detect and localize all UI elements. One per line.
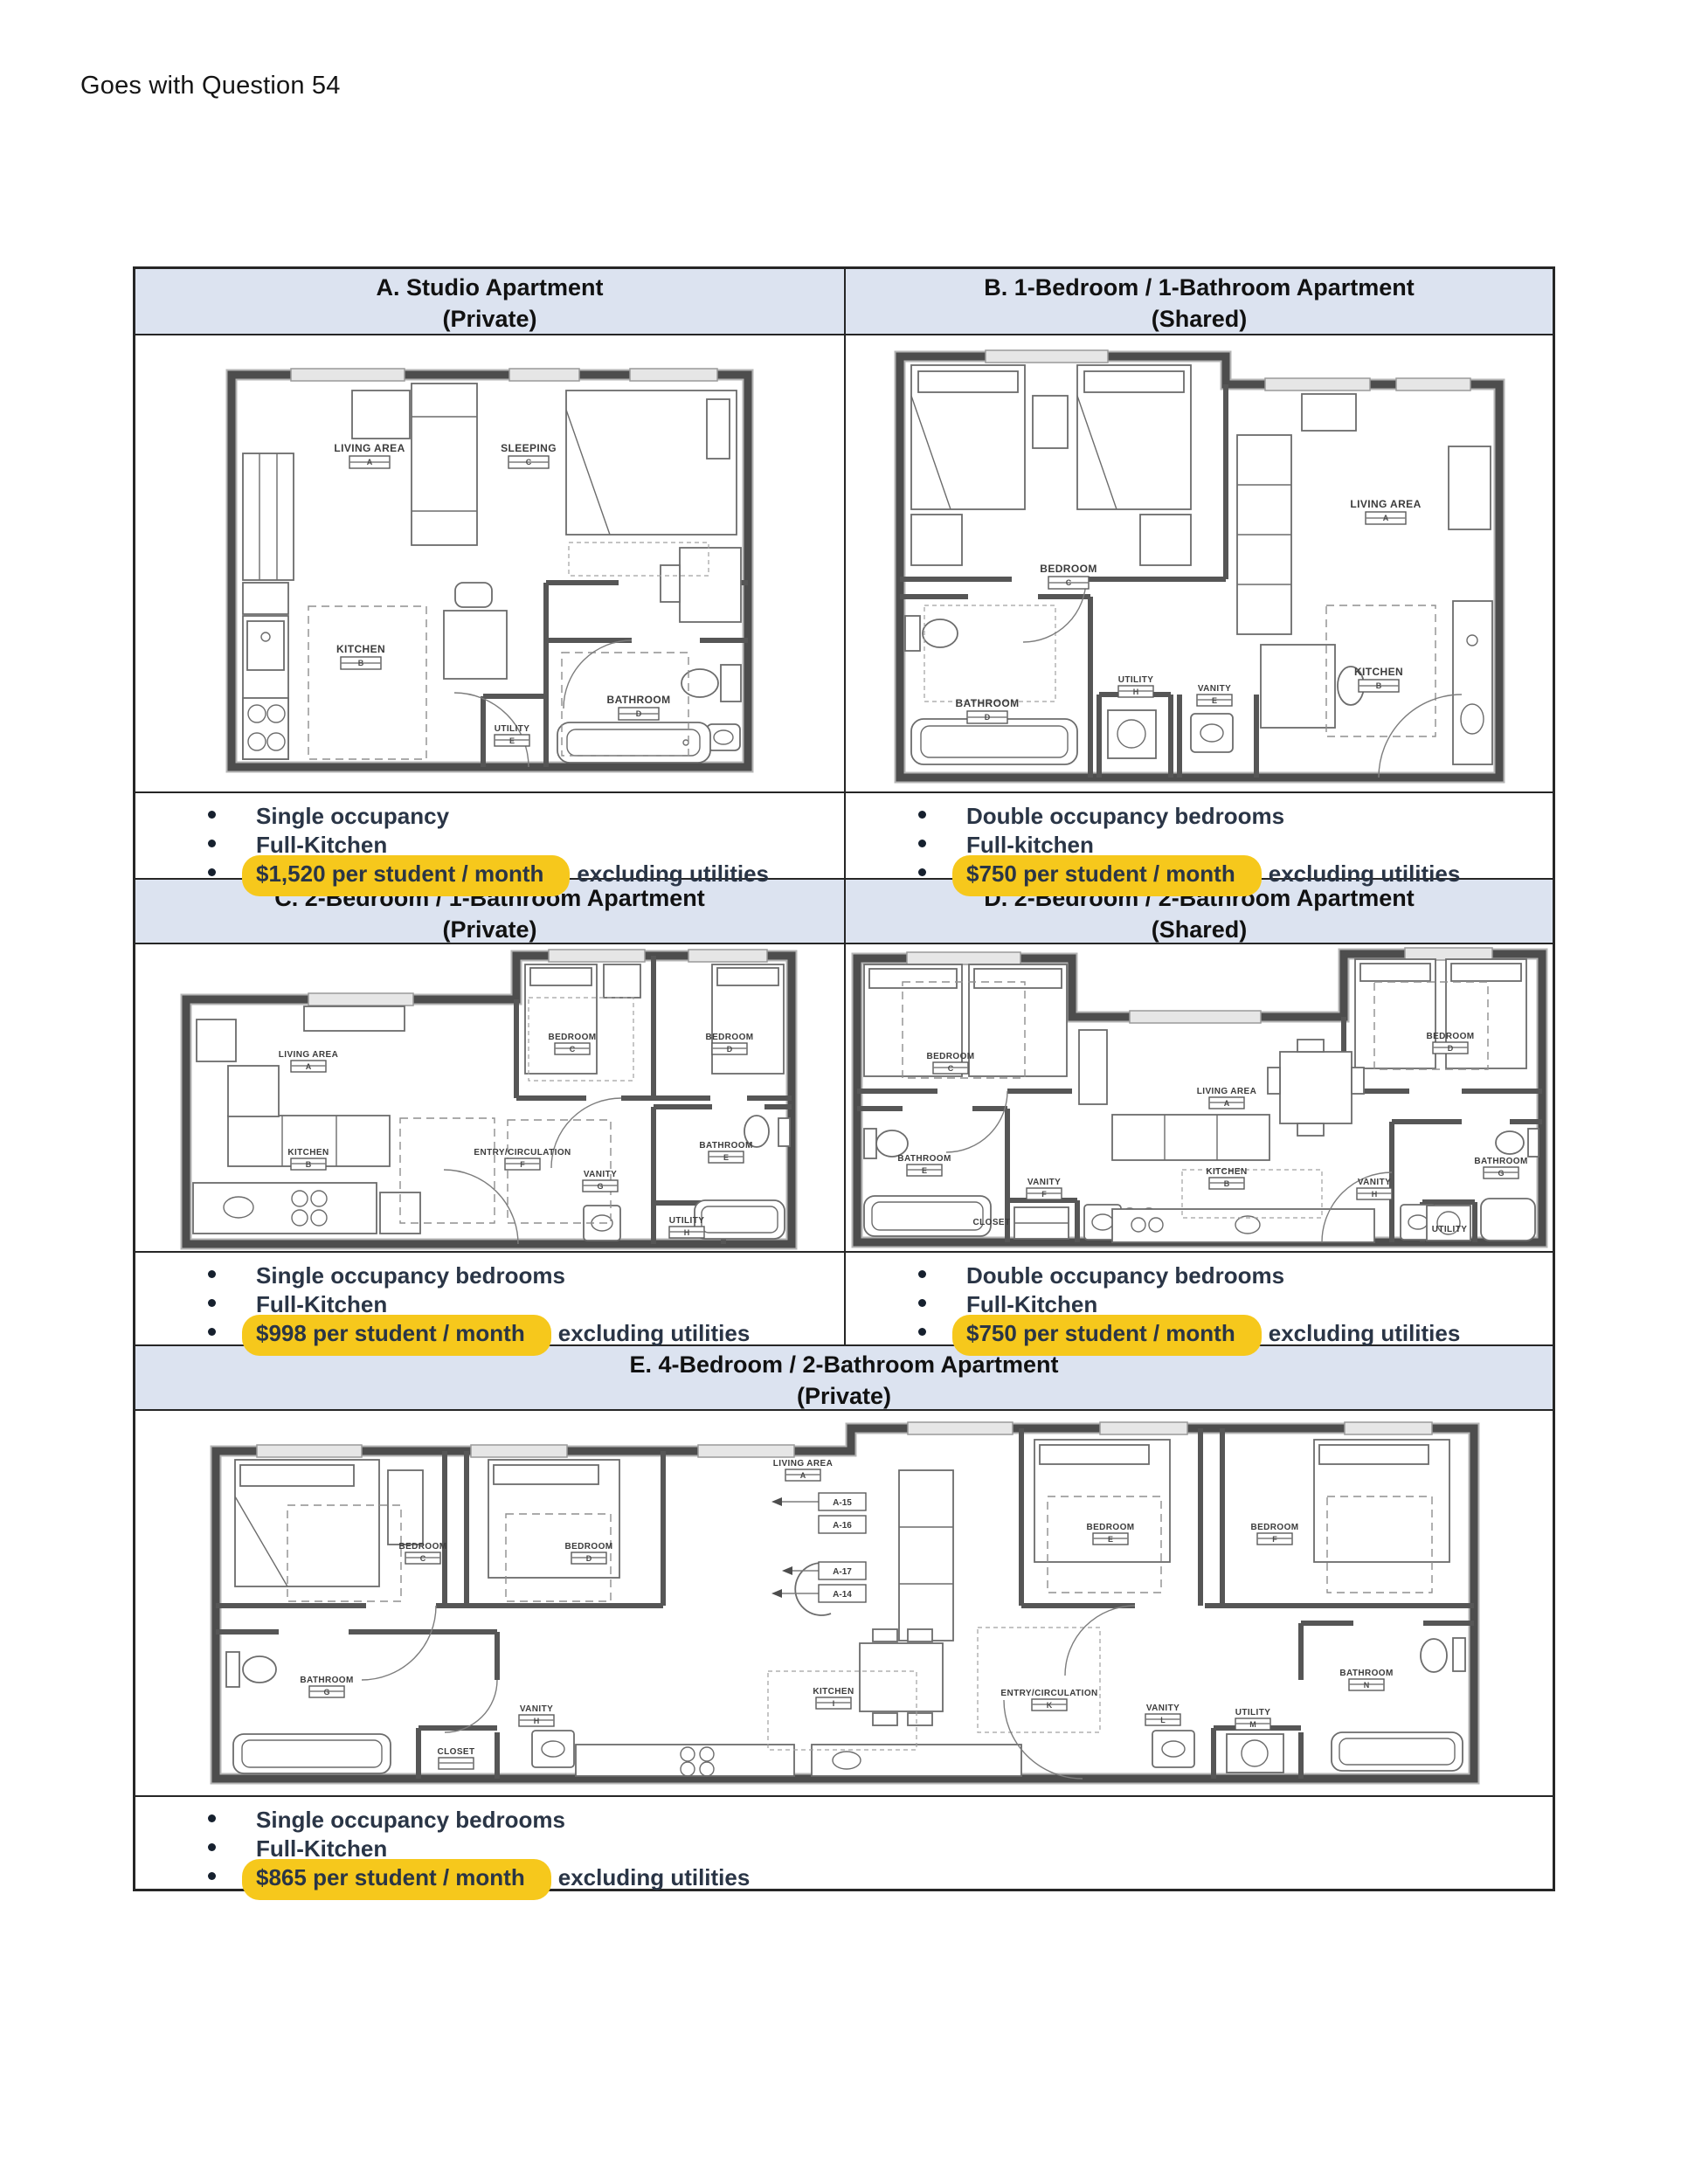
svg-text:I: I <box>832 1699 834 1708</box>
room-label-living-area: LIVING AREA A <box>772 1459 832 1481</box>
svg-text:UTILITY: UTILITY <box>1235 1708 1270 1717</box>
svg-text:D: D <box>1447 1044 1453 1053</box>
svg-text:KITCHEN: KITCHEN <box>287 1148 329 1158</box>
room-label-utility: UTILITY E <box>495 724 530 746</box>
bullet-occupancy: Double occupancy bedrooms <box>918 802 1553 831</box>
room-label-vanity-2: VANITY H <box>1357 1178 1392 1199</box>
price-highlight: $998 per student / month <box>242 1315 551 1356</box>
plan-row-ab: LIVING AREA A SLEEPING C KITCHEN B <box>135 334 1553 791</box>
svg-text:UTILITY: UTILITY <box>1117 675 1153 685</box>
room-label-kitchen: KITCHEN B <box>1206 1167 1247 1189</box>
room-label-bathroom-2: BATHROOM G <box>1474 1157 1527 1178</box>
plan-b-floorplan: BEDROOM C LIVING AREA A KITCHEN B <box>889 343 1510 784</box>
plan-a-cell: LIVING AREA A SLEEPING C KITCHEN B <box>135 335 844 791</box>
section-b-header: B. 1-Bedroom / 1-Bathroom Apartment (Sha… <box>844 269 1553 334</box>
svg-text:H: H <box>684 1228 690 1237</box>
svg-text:A: A <box>799 1471 806 1480</box>
plan-row-cd: LIVING AREA A KITCHEN B BEDROOM C <box>135 943 1553 1251</box>
plan-c-cell: LIVING AREA A KITCHEN B BEDROOM C <box>135 944 844 1251</box>
callout-a17: A-17 <box>782 1562 866 1579</box>
callout-a16: A-16 <box>819 1516 866 1533</box>
plan-a-floorplan: LIVING AREA A SLEEPING C KITCHEN B <box>221 349 758 778</box>
room-label-bathroom-1: BATHROOM G <box>300 1676 353 1697</box>
svg-text:A-17: A-17 <box>833 1567 852 1577</box>
room-label-vanity: VANITY G <box>583 1170 618 1192</box>
bullet-occupancy: Double occupancy bedrooms <box>918 1261 1553 1290</box>
svg-text:BEDROOM: BEDROOM <box>1426 1032 1474 1041</box>
svg-text:UTILITY: UTILITY <box>669 1216 705 1226</box>
section-b-subtitle: (Shared) <box>846 303 1553 335</box>
svg-text:C: C <box>1065 578 1071 587</box>
bullet-dot <box>918 1328 926 1336</box>
price-highlight: $750 per student / month <box>952 1315 1262 1356</box>
bullet-dot <box>208 1270 216 1278</box>
plan-c-furniture <box>193 964 790 1241</box>
svg-text:B: B <box>1375 681 1381 690</box>
room-label-bedroom-1: BEDROOM C <box>548 1033 596 1054</box>
room-label-vanity: VANITY E <box>1197 684 1232 706</box>
bullet-dot <box>208 840 216 847</box>
room-label-living-area: LIVING AREA A <box>334 442 405 468</box>
svg-text:VANITY: VANITY <box>519 1704 552 1714</box>
svg-text:D: D <box>727 1045 733 1054</box>
room-label-kitchen: KITCHEN B <box>287 1148 329 1170</box>
bullet-price: $1,520 per student / monthexcluding util… <box>208 860 844 888</box>
svg-text:F: F <box>1041 1190 1047 1199</box>
svg-text:ENTRY/CIRCULATION: ENTRY/CIRCULATION <box>474 1148 571 1158</box>
price-highlight: $1,520 per student / month <box>242 855 570 896</box>
svg-text:VANITY: VANITY <box>1027 1178 1060 1187</box>
bullet-dot <box>208 1328 216 1336</box>
svg-text:G: G <box>323 1688 329 1697</box>
svg-text:BATHROOM: BATHROOM <box>897 1154 951 1164</box>
svg-text:LIVING AREA: LIVING AREA <box>772 1459 832 1469</box>
svg-text:B: B <box>358 659 364 667</box>
svg-text:B: B <box>1223 1179 1229 1188</box>
bullet-dot <box>918 1270 926 1278</box>
room-label-closet: CLOSET <box>437 1747 474 1769</box>
svg-text:VANITY: VANITY <box>584 1170 617 1179</box>
svg-text:E: E <box>921 1166 926 1175</box>
room-label-vanity-1: VANITY F <box>1027 1178 1062 1199</box>
svg-text:BEDROOM: BEDROOM <box>705 1033 753 1042</box>
section-a-title: A. Studio Apartment <box>135 272 844 303</box>
svg-text:C: C <box>419 1554 425 1563</box>
svg-text:BEDROOM: BEDROOM <box>398 1542 446 1552</box>
room-label-living-area: LIVING AREA A <box>1350 498 1421 524</box>
bullet-dot <box>918 840 926 847</box>
section-a-bullets: Single occupancy Full-Kitchen $1,520 per… <box>135 793 844 878</box>
svg-text:H: H <box>533 1717 539 1725</box>
svg-text:F: F <box>520 1160 525 1169</box>
room-label-living-area: LIVING AREA A <box>1196 1087 1256 1109</box>
svg-text:A-15: A-15 <box>833 1498 852 1508</box>
page-note: Goes with Question 54 <box>80 72 341 100</box>
bullet-dot <box>208 811 216 819</box>
room-label-bathroom: BATHROOM E <box>699 1141 752 1163</box>
svg-text:C: C <box>570 1045 576 1054</box>
svg-text:BEDROOM: BEDROOM <box>926 1052 974 1061</box>
room-label-living-area: LIVING AREA A <box>279 1050 338 1072</box>
section-d-subtitle: (Shared) <box>846 914 1553 945</box>
bullet-price: $865 per student / monthexcluding utilit… <box>208 1863 1553 1892</box>
svg-text:BATHROOM: BATHROOM <box>1474 1157 1527 1166</box>
svg-text:KITCHEN: KITCHEN <box>1206 1167 1247 1177</box>
room-label-bedroom-2: BEDROOM D <box>705 1033 753 1054</box>
svg-text:BATHROOM: BATHROOM <box>699 1141 752 1151</box>
svg-text:E: E <box>509 736 515 745</box>
room-label-bedroom-1: BEDROOM C <box>398 1542 446 1564</box>
room-label-bedroom-4: BEDROOM F <box>1250 1523 1298 1545</box>
svg-text:G: G <box>1498 1169 1504 1178</box>
room-label-bedroom-2: BEDROOM D <box>1426 1032 1474 1054</box>
section-e-bullets: Single occupancy bedrooms Full-Kitchen $… <box>135 1797 1553 1887</box>
svg-text:VANITY: VANITY <box>1357 1178 1390 1187</box>
plan-d-cell: BEDROOM C BEDROOM D LIVING AREA A <box>844 944 1553 1251</box>
svg-text:A-14: A-14 <box>833 1590 852 1600</box>
section-b-bullets: Double occupancy bedrooms Full-kitchen $… <box>844 793 1553 878</box>
svg-text:BATHROOM: BATHROOM <box>300 1676 353 1685</box>
svg-text:BEDROOM: BEDROOM <box>1086 1523 1134 1532</box>
svg-text:BATHROOM: BATHROOM <box>955 697 1019 709</box>
room-label-bedroom: BEDROOM C <box>1040 563 1097 589</box>
bullet-dot <box>918 868 926 876</box>
svg-text:KITCHEN: KITCHEN <box>336 643 385 655</box>
apartment-table: A. Studio Apartment (Private) B. 1-Bedro… <box>133 266 1555 1891</box>
room-label-closet: CLOSET <box>972 1218 1010 1227</box>
svg-text:G: G <box>597 1182 603 1191</box>
svg-text:C: C <box>526 458 532 467</box>
callout-a14: A-14 <box>771 1585 866 1602</box>
svg-text:L: L <box>1160 1716 1166 1724</box>
svg-text:F: F <box>1272 1535 1277 1544</box>
plan-row-e: A-15 A-16 A-17 A-14 LIVI <box>135 1409 1553 1795</box>
price-highlight: $750 per student / month <box>952 855 1262 896</box>
bullet-occupancy: Single occupancy bedrooms <box>208 1261 844 1290</box>
svg-text:BEDROOM: BEDROOM <box>1250 1523 1298 1532</box>
svg-text:A-16: A-16 <box>833 1521 852 1531</box>
svg-text:D: D <box>636 709 642 718</box>
svg-text:E: E <box>1211 696 1216 705</box>
header-row-ab: A. Studio Apartment (Private) B. 1-Bedro… <box>135 269 1553 334</box>
room-label-bathroom-2: BATHROOM N <box>1339 1669 1393 1690</box>
section-b-title: B. 1-Bedroom / 1-Bathroom Apartment <box>846 272 1553 303</box>
svg-text:UTILITY: UTILITY <box>495 724 530 734</box>
svg-text:K: K <box>1046 1701 1052 1710</box>
bullet-occupancy: Single occupancy <box>208 802 844 831</box>
section-a-header: A. Studio Apartment (Private) <box>135 269 844 334</box>
bullet-price: $750 per student / monthexcluding utilit… <box>918 860 1553 888</box>
room-label-kitchen: KITCHEN I <box>813 1687 854 1709</box>
svg-text:A: A <box>1223 1099 1229 1108</box>
svg-text:BEDROOM: BEDROOM <box>1040 563 1097 575</box>
svg-text:N: N <box>1363 1681 1369 1690</box>
svg-text:D: D <box>984 713 990 722</box>
room-label-utility: UTILITY H <box>1117 675 1153 697</box>
bullet-dot <box>208 1843 216 1851</box>
room-label-utility: UTILITY H <box>669 1216 705 1238</box>
svg-text:KITCHEN: KITCHEN <box>1353 666 1402 678</box>
section-c-bullets: Single occupancy bedrooms Full-Kitchen $… <box>135 1253 844 1344</box>
svg-text:ENTRY/CIRCULATION: ENTRY/CIRCULATION <box>1000 1689 1097 1698</box>
price-highlight: $865 per student / month <box>242 1859 551 1900</box>
room-label-entry-circulation: ENTRY/CIRCULATION K <box>1000 1689 1097 1711</box>
svg-text:E: E <box>1107 1535 1112 1544</box>
svg-text:LIVING AREA: LIVING AREA <box>279 1050 338 1060</box>
svg-text:BEDROOM: BEDROOM <box>564 1542 612 1552</box>
plan-d-floorplan: BEDROOM C BEDROOM D LIVING AREA A <box>850 947 1549 1248</box>
bullet-occupancy: Single occupancy bedrooms <box>208 1806 1553 1835</box>
svg-text:H: H <box>1132 688 1138 696</box>
room-label-kitchen: KITCHEN B <box>336 643 385 669</box>
svg-text:C: C <box>947 1064 953 1073</box>
svg-text:LIVING AREA: LIVING AREA <box>1350 498 1421 510</box>
bullet-dot <box>208 1872 216 1880</box>
svg-text:H: H <box>1371 1190 1377 1199</box>
bullets-row-ab: Single occupancy Full-Kitchen $1,520 per… <box>135 791 1553 878</box>
section-c-subtitle: (Private) <box>135 914 844 945</box>
room-label-entry-circulation: ENTRY/CIRCULATION F <box>474 1148 571 1170</box>
bullet-price: $998 per student / monthexcluding utilit… <box>208 1319 844 1348</box>
svg-text:KITCHEN: KITCHEN <box>813 1687 854 1697</box>
plan-e-cell: A-15 A-16 A-17 A-14 LIVI <box>135 1411 1553 1795</box>
svg-text:CLOSET: CLOSET <box>972 1218 1010 1227</box>
room-label-bathroom-1: BATHROOM E <box>897 1154 951 1176</box>
plan-c-floorplan: LIVING AREA A KITCHEN B BEDROOM C <box>177 945 802 1251</box>
svg-text:VANITY: VANITY <box>1197 684 1230 694</box>
bullet-dot <box>918 811 926 819</box>
svg-text:UTILITY: UTILITY <box>1431 1225 1467 1234</box>
room-label-utility: UTILITY <box>1431 1225 1467 1234</box>
section-e-subtitle: (Private) <box>135 1380 1553 1412</box>
room-label-bedroom-3: BEDROOM E <box>1086 1523 1134 1545</box>
svg-text:SLEEPING: SLEEPING <box>501 442 557 454</box>
svg-text:A: A <box>1382 514 1388 522</box>
room-label-bathroom: BATHROOM D <box>607 694 671 720</box>
svg-text:BEDROOM: BEDROOM <box>548 1033 596 1042</box>
bullets-row-cd: Single occupancy bedrooms Full-Kitchen $… <box>135 1251 1553 1344</box>
section-d-bullets: Double occupancy bedrooms Full-Kitchen $… <box>844 1253 1553 1344</box>
svg-text:A: A <box>367 458 373 467</box>
room-label-vanity-1: VANITY H <box>519 1704 554 1726</box>
svg-text:CLOSET: CLOSET <box>437 1747 474 1757</box>
bullet-dot <box>208 868 216 876</box>
callout-a15: A-15 <box>771 1493 866 1510</box>
svg-text:A: A <box>306 1062 312 1071</box>
bullet-dot <box>208 1814 216 1822</box>
section-a-subtitle: (Private) <box>135 303 844 335</box>
room-label-vanity-2: VANITY L <box>1145 1704 1180 1725</box>
bullet-dot <box>918 1299 926 1307</box>
svg-text:BATHROOM: BATHROOM <box>1339 1669 1393 1678</box>
room-label-bedroom-1: BEDROOM C <box>926 1052 974 1074</box>
svg-text:LIVING AREA: LIVING AREA <box>334 442 405 454</box>
svg-text:M: M <box>1249 1720 1256 1729</box>
svg-text:LIVING AREA: LIVING AREA <box>1196 1087 1256 1096</box>
plan-e-floorplan: A-15 A-16 A-17 A-14 LIVI <box>209 1418 1480 1789</box>
svg-text:VANITY: VANITY <box>1145 1704 1179 1713</box>
svg-text:D: D <box>585 1554 591 1563</box>
bullets-row-e: Single occupancy bedrooms Full-Kitchen $… <box>135 1795 1553 1887</box>
room-label-sleeping: SLEEPING C <box>501 442 557 468</box>
bullet-price: $750 per student / monthexcluding utilit… <box>918 1319 1553 1348</box>
bullet-dot <box>208 1299 216 1307</box>
svg-text:B: B <box>306 1160 312 1169</box>
room-label-bedroom-2: BEDROOM D <box>564 1542 612 1564</box>
plan-b-cell: BEDROOM C LIVING AREA A KITCHEN B <box>844 335 1553 791</box>
svg-text:E: E <box>723 1153 729 1162</box>
room-label-utility: UTILITY M <box>1235 1708 1270 1730</box>
svg-text:BATHROOM: BATHROOM <box>607 694 671 706</box>
